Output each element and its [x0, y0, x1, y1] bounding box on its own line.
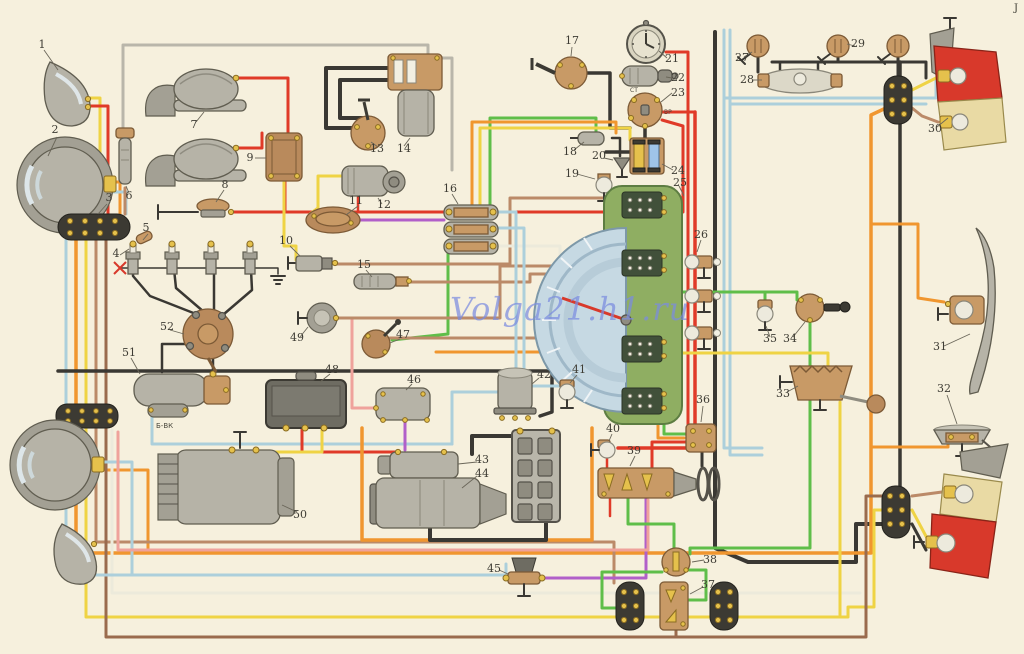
- terminal-block-front-left: [58, 214, 130, 240]
- cluster-connector-4: [622, 388, 666, 414]
- callout-27: 27: [735, 51, 749, 64]
- oil-pressure-sender: [288, 256, 338, 271]
- callout-28: 28: [740, 73, 754, 86]
- callout-4: 4: [113, 247, 120, 260]
- connector-36: [686, 424, 716, 452]
- horn-relay: [266, 133, 302, 181]
- callout-3: 3: [106, 191, 113, 204]
- callout-7: 7: [191, 118, 198, 131]
- ignition-terminal-vr-label: ВР: [664, 109, 672, 116]
- callout-34: 34: [783, 332, 797, 345]
- voltage-regulator-48: [266, 372, 346, 431]
- callout-1: 1: [39, 38, 46, 51]
- callout-35: 35: [763, 332, 777, 345]
- callout-37: 37: [701, 578, 715, 591]
- callout-44: 44: [475, 467, 489, 480]
- callout-16: 16: [443, 182, 457, 195]
- callout-14: 14: [397, 142, 411, 155]
- callout-2: 2: [52, 123, 59, 136]
- cluster-connector-2: [622, 250, 666, 276]
- callout-17: 17: [565, 34, 579, 47]
- callout-47: 47: [396, 328, 410, 341]
- callout-22: 22: [671, 71, 685, 84]
- callout-36: 36: [696, 393, 710, 406]
- connector-stack-16: [444, 205, 498, 254]
- callout-49: 49: [290, 331, 304, 344]
- callout-30: 30: [928, 122, 942, 135]
- callout-13: 13: [370, 142, 384, 155]
- callout-51: 51: [122, 346, 136, 359]
- horn-relay-42: [494, 368, 536, 420]
- callout-23: 23: [671, 86, 685, 99]
- fuse-6: [116, 128, 134, 184]
- callout-15: 15: [357, 258, 371, 271]
- callout-18: 18: [563, 145, 577, 158]
- callout-48: 48: [325, 363, 339, 376]
- callout-39: 39: [627, 444, 641, 457]
- wiring-diagram-page: СТ ВР: [0, 0, 1024, 654]
- callout-45: 45: [487, 562, 501, 575]
- relay-46: [374, 388, 430, 422]
- callout-8: 8: [222, 178, 229, 191]
- callout-10: 10: [279, 234, 293, 247]
- callout-31: 31: [933, 340, 947, 353]
- cluster-connector-3: [622, 336, 666, 362]
- callout-32: 32: [937, 382, 951, 395]
- watermark: Volga21.h1.ru: [450, 290, 690, 328]
- cluster-connector-1: [622, 192, 666, 218]
- callout-50: 50: [293, 508, 307, 521]
- callout-41: 41: [572, 363, 586, 376]
- callout-38: 38: [703, 553, 717, 566]
- callout-46: 46: [407, 373, 421, 386]
- coil-resistor-label: Б-ВК: [156, 422, 173, 430]
- callout-33: 33: [776, 387, 790, 400]
- callout-40: 40: [606, 422, 620, 435]
- callout-9: 9: [247, 151, 254, 164]
- callout-25: 25: [673, 176, 687, 189]
- callout-26: 26: [694, 228, 708, 241]
- callout-6: 6: [126, 189, 133, 202]
- callout-21: 21: [665, 52, 679, 65]
- callout-20: 20: [592, 149, 606, 162]
- callout-52: 52: [160, 320, 174, 333]
- turn-signal-relay-37: [660, 582, 688, 630]
- fuse-block-24: [630, 138, 664, 174]
- flasher-38: [662, 548, 690, 576]
- callout-19: 19: [565, 167, 579, 180]
- callout-43: 43: [475, 453, 489, 466]
- battery: [512, 428, 560, 522]
- callout-11: 11: [349, 194, 363, 207]
- corner-mark: J: [1013, 3, 1018, 14]
- callout-29: 29: [851, 37, 865, 50]
- callout-5: 5: [143, 221, 150, 234]
- callout-42: 42: [537, 368, 551, 381]
- callout-12: 12: [377, 198, 391, 211]
- rear-connector-lower: [882, 486, 910, 538]
- wiring-diagram: СТ ВР: [0, 0, 1024, 654]
- connector-bottom-left: [616, 582, 644, 630]
- ignition-terminal-st-label: СТ: [630, 87, 638, 94]
- rear-connector-upper: [884, 76, 912, 124]
